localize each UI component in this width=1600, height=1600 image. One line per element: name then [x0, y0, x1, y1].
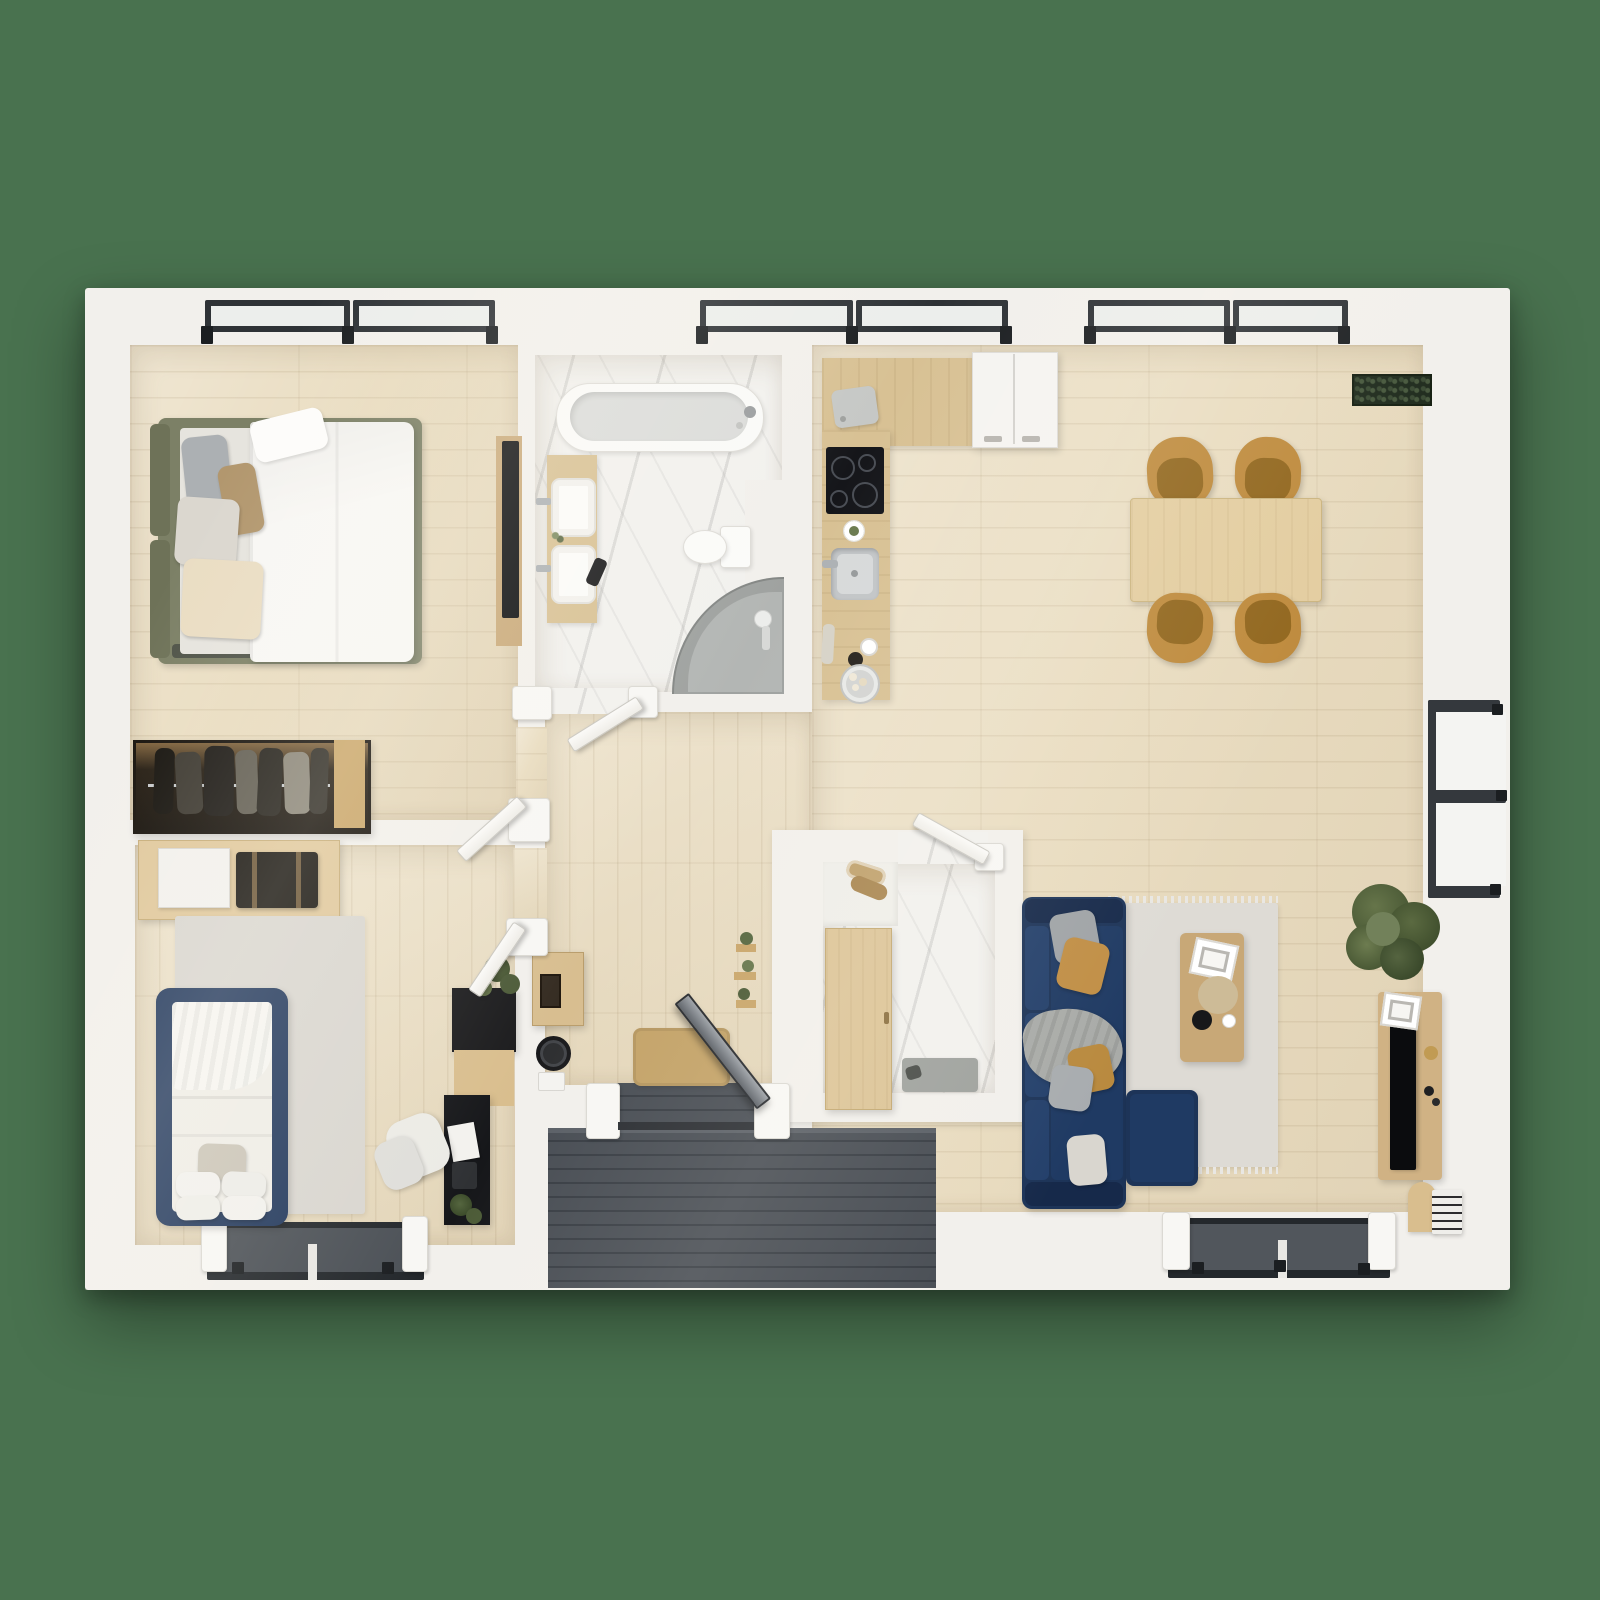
kitchen-faucet — [822, 560, 838, 568]
pastry — [849, 673, 857, 681]
floor-plant — [466, 1208, 482, 1224]
floor-plan-render — [0, 0, 1600, 1600]
right-window-pane-bottom — [1436, 803, 1506, 886]
sofa-pillow-gray — [1047, 1063, 1095, 1112]
fridge-handle — [1022, 436, 1040, 442]
sofa-back-cushion — [1025, 1100, 1049, 1180]
sofa-armrest-bottom — [1025, 1182, 1123, 1206]
dining-chair-seat — [1156, 457, 1204, 503]
living-bay-post-left — [1162, 1212, 1190, 1270]
small-cup — [1222, 1014, 1236, 1028]
sofa-pillow-white — [1066, 1133, 1108, 1186]
sink-faucet — [536, 565, 551, 572]
right-window-pane-top — [1436, 712, 1506, 790]
cabinet-picture — [540, 974, 561, 1008]
entry-threshold — [618, 1122, 754, 1130]
plant-shelf — [736, 944, 756, 952]
sofa-chaise-cushion — [1130, 1094, 1194, 1182]
desk-plant — [500, 974, 520, 994]
bedroom2-bay-post-right — [402, 1216, 428, 1272]
vessel-sink — [551, 478, 596, 537]
burner — [831, 456, 855, 480]
bed2-pillow — [221, 1171, 266, 1199]
pillow-cream — [180, 558, 264, 640]
sink-faucet — [536, 498, 551, 505]
window-clip — [232, 1262, 244, 1274]
fridge-door-split — [1013, 354, 1015, 444]
window-clip — [201, 326, 213, 344]
dining-chair-seat — [1244, 457, 1292, 503]
window-clip — [1084, 326, 1096, 344]
window-clip — [1492, 704, 1503, 715]
window-clip — [1358, 1263, 1370, 1275]
shelf-plant — [738, 988, 750, 1000]
toilet-bowl — [683, 530, 727, 564]
rug-fringe-top — [1108, 896, 1278, 903]
bedroom2-bay-mullion — [308, 1244, 317, 1280]
shelf-plant — [742, 960, 754, 972]
cabinet-handle — [884, 1012, 889, 1024]
intercom-box — [538, 1072, 565, 1091]
window-clip — [1274, 1260, 1286, 1272]
window-clip — [846, 326, 858, 344]
sink-drain — [851, 570, 858, 577]
tub-faucet — [744, 406, 756, 418]
book-stack — [1432, 1190, 1462, 1234]
right-window-frame-mid — [1428, 790, 1506, 803]
window-clip — [1192, 1262, 1204, 1274]
bottle — [821, 624, 835, 665]
bed2-seam — [172, 1134, 272, 1137]
window-clip — [1224, 326, 1236, 344]
suitcase-strap — [252, 852, 257, 908]
window-dining-right-glass — [1239, 306, 1342, 326]
candle — [1424, 1086, 1434, 1096]
dining-chair-seat — [1156, 599, 1204, 645]
window-dining-left-glass — [1094, 306, 1224, 326]
hanging-garment — [174, 751, 203, 814]
plant-shelf — [734, 972, 756, 980]
desk-machine — [452, 1162, 477, 1189]
white-storage-box — [158, 848, 230, 908]
window-clip — [1000, 326, 1012, 344]
bed2-pillow — [176, 1172, 220, 1198]
hanging-garment — [283, 752, 311, 815]
dining-chair-seat — [1244, 599, 1292, 645]
window-clip — [1338, 326, 1350, 344]
black-suitcase — [236, 852, 318, 908]
pastry — [852, 684, 859, 691]
photo-frame — [1380, 992, 1422, 1031]
hanging-garment — [309, 748, 329, 815]
living-bay-mullion — [1278, 1240, 1287, 1278]
flower-bouquet — [1198, 976, 1238, 1014]
candle — [1432, 1098, 1440, 1106]
entry-jamb — [586, 1083, 620, 1139]
window-clip — [342, 326, 354, 344]
entry-deck — [548, 1128, 936, 1288]
shower-column — [762, 626, 770, 650]
hanging-garment — [256, 747, 284, 816]
tall-cabinet — [825, 928, 892, 1110]
pillow-white — [174, 496, 241, 568]
door-jamb — [512, 686, 552, 720]
pastry — [859, 678, 867, 686]
bed2-pillow — [176, 1195, 221, 1221]
green-dish — [843, 520, 865, 542]
planter-box — [1352, 374, 1432, 406]
tub-drain — [736, 422, 743, 429]
right-window-frame-top — [1428, 700, 1500, 712]
coffee-cup — [860, 638, 878, 656]
cutting-board-hole — [840, 416, 846, 422]
headboard-cushion — [150, 424, 170, 536]
window-clip — [382, 1262, 394, 1274]
window-bedroom1-left-glass — [211, 306, 344, 326]
bed2-seam — [172, 1096, 272, 1099]
fridge-handle — [984, 436, 1002, 442]
burner — [858, 454, 876, 472]
shelf-plant — [740, 932, 753, 945]
burner — [852, 482, 878, 508]
vanity-flowers — [549, 530, 565, 544]
cutting-board — [831, 385, 880, 429]
suitcase-strap — [296, 852, 301, 908]
window-clip — [696, 326, 708, 344]
plant-foliage — [1366, 912, 1400, 946]
window-clip — [1496, 790, 1507, 801]
hanging-garment — [153, 748, 175, 815]
burner — [830, 490, 848, 508]
headboard-cushion — [150, 540, 170, 658]
dining-table — [1130, 498, 1322, 602]
gold-vase — [1424, 1046, 1438, 1060]
wall-tv — [502, 441, 519, 618]
window-kitchen-left-glass — [706, 306, 847, 326]
window-clip — [1490, 884, 1501, 895]
living-bay-post-right — [1368, 1212, 1396, 1270]
wardrobe-end-panel — [334, 740, 365, 828]
bedroom-2-door-opening — [513, 848, 547, 928]
bed2-pillow — [222, 1196, 266, 1220]
hanging-garment — [203, 746, 234, 817]
plant-shelf — [736, 1000, 756, 1008]
fridge — [972, 352, 1058, 448]
window-clip — [486, 326, 498, 344]
round-wall-fan — [536, 1036, 571, 1071]
desk-hutch — [452, 988, 516, 1052]
black-bowl — [1192, 1010, 1212, 1030]
bathtub-basin — [570, 392, 748, 441]
window-kitchen-right-glass — [862, 306, 1002, 326]
bedroom-1-door-opening — [516, 727, 547, 805]
window-bedroom1-right-glass — [359, 306, 489, 326]
sofa-back-cushion — [1025, 926, 1049, 1010]
bed2-duvet-fold — [172, 1002, 272, 1090]
hanging-garment — [235, 750, 259, 815]
